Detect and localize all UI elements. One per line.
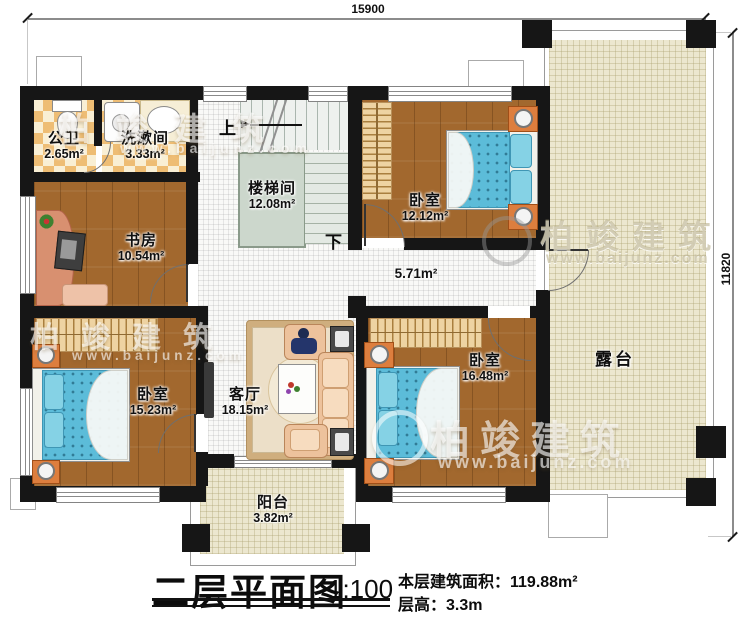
floor-plan-canvas: 15900 11820 上 下 [0, 0, 750, 619]
balcony-column [342, 524, 370, 552]
balcony-column [182, 524, 210, 552]
room-label-bedroom-br: 卧室 16.48m² [450, 352, 520, 384]
watermark-url: www.baijunz.com [72, 348, 245, 363]
monitor-screen [60, 239, 77, 259]
armchair-cushion [290, 429, 320, 451]
side-table [330, 428, 354, 456]
room-label-corridor: 5.71m² [384, 266, 448, 282]
lamp [370, 345, 389, 364]
watermark-url: www.baijunz.com [438, 452, 633, 473]
plant [39, 214, 54, 229]
window-south-bedroombl [56, 487, 160, 503]
watermark-logo-icon [482, 216, 532, 266]
sofa-cushion [322, 358, 349, 388]
side-table [330, 326, 354, 352]
sofa-cushion [322, 388, 349, 418]
room-label-balcony: 阳台 3.82m² [238, 494, 308, 526]
wall-junction-stub [348, 296, 366, 318]
watermark-url: www.baijunz.com [546, 250, 710, 268]
wall-stair-bedroom [348, 86, 362, 250]
room-label-living: 客厅 18.15m² [210, 386, 280, 418]
stair-down-label: 下 [325, 228, 342, 253]
terrace-step [548, 494, 608, 538]
extension-line [708, 536, 732, 537]
watermark-logo-icon [372, 410, 428, 466]
pillow [44, 374, 64, 410]
window-north-bedroom [388, 86, 512, 102]
pillow [510, 170, 532, 204]
wall-bedroombr-corridor-b [530, 306, 550, 318]
study-door-leaf [186, 264, 188, 302]
corridor-floor [198, 248, 536, 306]
bedroom-bl-door-leaf [194, 414, 196, 452]
person-body [291, 338, 317, 354]
wall-living-south-a [196, 454, 234, 468]
exterior-outline [36, 56, 82, 88]
floor-height-text: 层高：3.3m [398, 591, 482, 615]
wall-bath-study [20, 172, 200, 182]
terrace-column [696, 426, 726, 458]
flowers [286, 389, 291, 394]
lamp [514, 109, 533, 128]
room-label-bedroom-bl: 卧室 15.23m² [118, 386, 188, 418]
pillow [378, 372, 398, 408]
plan-title: 二层平面图 [152, 562, 347, 616]
wall-bedroombr-corridor-a [366, 306, 488, 318]
pillow [44, 412, 64, 448]
dimension-line-top [28, 18, 706, 20]
watermark-url: www.baijunz.com [120, 140, 312, 156]
flowers [294, 386, 300, 392]
window-north-stair-1 [203, 86, 247, 102]
room-label-terrace: 露台 [580, 350, 650, 370]
room-label-study: 书房 10.54m² [96, 232, 186, 264]
pillow [510, 134, 532, 168]
terrace-column [522, 20, 552, 48]
window-west-study [20, 196, 36, 294]
floor-area-text: 本层建筑面积：119.88m² [398, 568, 578, 592]
flowers [288, 382, 294, 388]
terrace-column [686, 478, 716, 506]
extension-line [27, 20, 28, 84]
window-north-stair-2 [308, 86, 348, 102]
lamp [37, 462, 55, 480]
wardrobe [362, 102, 392, 200]
wall-study-hall [186, 182, 198, 264]
floor-mat [62, 284, 108, 306]
window-south-bedroombr [392, 487, 506, 503]
dimension-top-width: 15900 [338, 2, 398, 16]
title-underline [152, 598, 390, 607]
lamp [370, 461, 389, 480]
room-label-bedroom-tr: 卧室 12.12m² [396, 192, 454, 224]
terrace-column [686, 20, 716, 48]
bedroom-tr-door-leaf [364, 204, 366, 246]
room-label-stairwell: 楼梯间 12.08m² [238, 180, 306, 212]
